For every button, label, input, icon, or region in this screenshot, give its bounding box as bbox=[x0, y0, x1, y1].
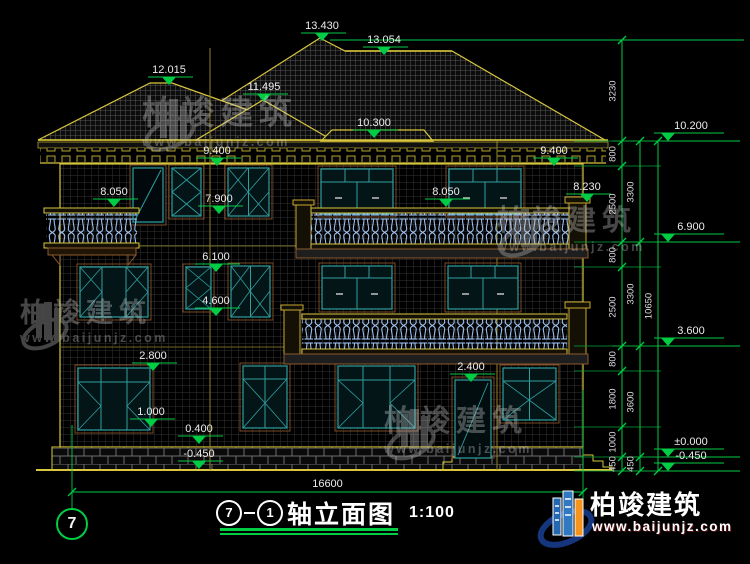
roof bbox=[38, 38, 605, 141]
watermark: 柏竣建筑 www.baijunjz.com bbox=[384, 406, 532, 456]
brand-logo-text: 柏竣建筑 bbox=[590, 485, 702, 522]
cad-elevation-drawing: 柏竣建筑 www.baijunjz.com 柏竣建筑 www.baijunjz.… bbox=[0, 0, 750, 564]
brand-logo: 柏竣建筑 www.baijunjz.com bbox=[536, 482, 750, 560]
watermark: 柏竣建筑 www.baijunjz.com bbox=[20, 299, 168, 345]
window bbox=[319, 263, 395, 312]
window bbox=[183, 264, 214, 312]
axis-bubble-7: 7 bbox=[56, 508, 88, 540]
watermark-logo-icon bbox=[20, 299, 70, 355]
watermark-logo-icon bbox=[384, 406, 438, 466]
title-axis-end-bubble: 1 bbox=[257, 500, 283, 526]
level-marker-triangle bbox=[661, 463, 675, 471]
cornice bbox=[38, 140, 608, 163]
window bbox=[225, 165, 272, 219]
brand-logo-icon bbox=[536, 486, 598, 552]
window bbox=[228, 263, 273, 320]
watermark-logo-icon bbox=[142, 96, 198, 156]
window bbox=[445, 263, 521, 312]
window bbox=[75, 365, 153, 433]
title-underline bbox=[220, 533, 398, 535]
title-axis-start-bubble: 7 bbox=[216, 500, 242, 526]
watermark: 柏竣建筑 www.baijunjz.com bbox=[497, 206, 645, 254]
title-scale: 1:100 bbox=[409, 504, 455, 522]
brand-logo-url: www.baijunjz.com bbox=[592, 519, 733, 534]
level-marker-triangle bbox=[661, 133, 675, 141]
elevation-geometry bbox=[0, 0, 750, 564]
level-marker-triangle bbox=[661, 234, 675, 242]
title-dash bbox=[244, 512, 255, 514]
watermark-logo-icon bbox=[497, 206, 547, 262]
title-underline bbox=[220, 528, 398, 531]
drawing-title: 7 1 轴立面图 1:100 bbox=[216, 495, 455, 531]
level-marker-triangle bbox=[661, 449, 675, 457]
window bbox=[240, 363, 290, 431]
watermark: 柏竣建筑 www.baijunjz.com bbox=[142, 96, 298, 149]
title-text: 轴立面图 bbox=[287, 495, 395, 531]
level-marker-triangle bbox=[661, 338, 675, 346]
window bbox=[169, 165, 204, 219]
